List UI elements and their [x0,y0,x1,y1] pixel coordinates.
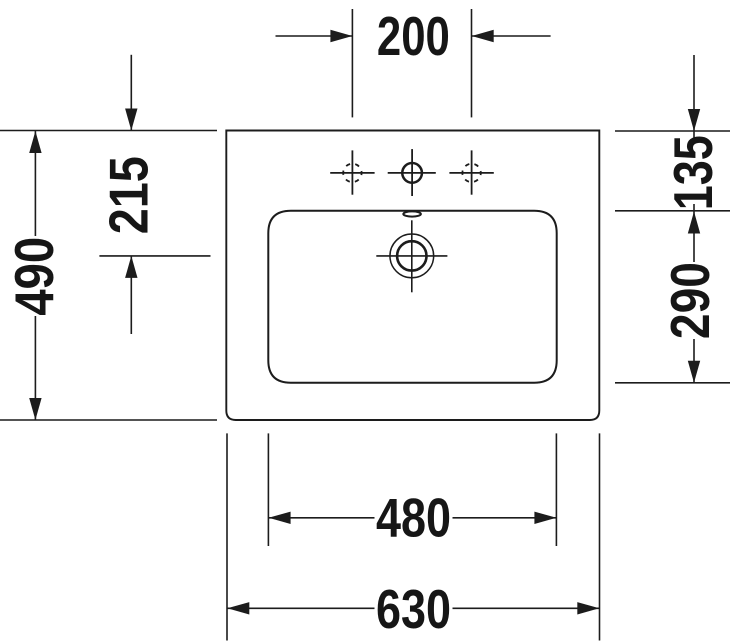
svg-text:490: 490 [3,237,65,316]
svg-text:200: 200 [377,5,450,67]
svg-text:630: 630 [376,578,451,640]
svg-text:480: 480 [376,487,451,549]
svg-text:135: 135 [662,135,724,210]
svg-text:290: 290 [659,262,721,339]
svg-text:215: 215 [97,156,159,234]
